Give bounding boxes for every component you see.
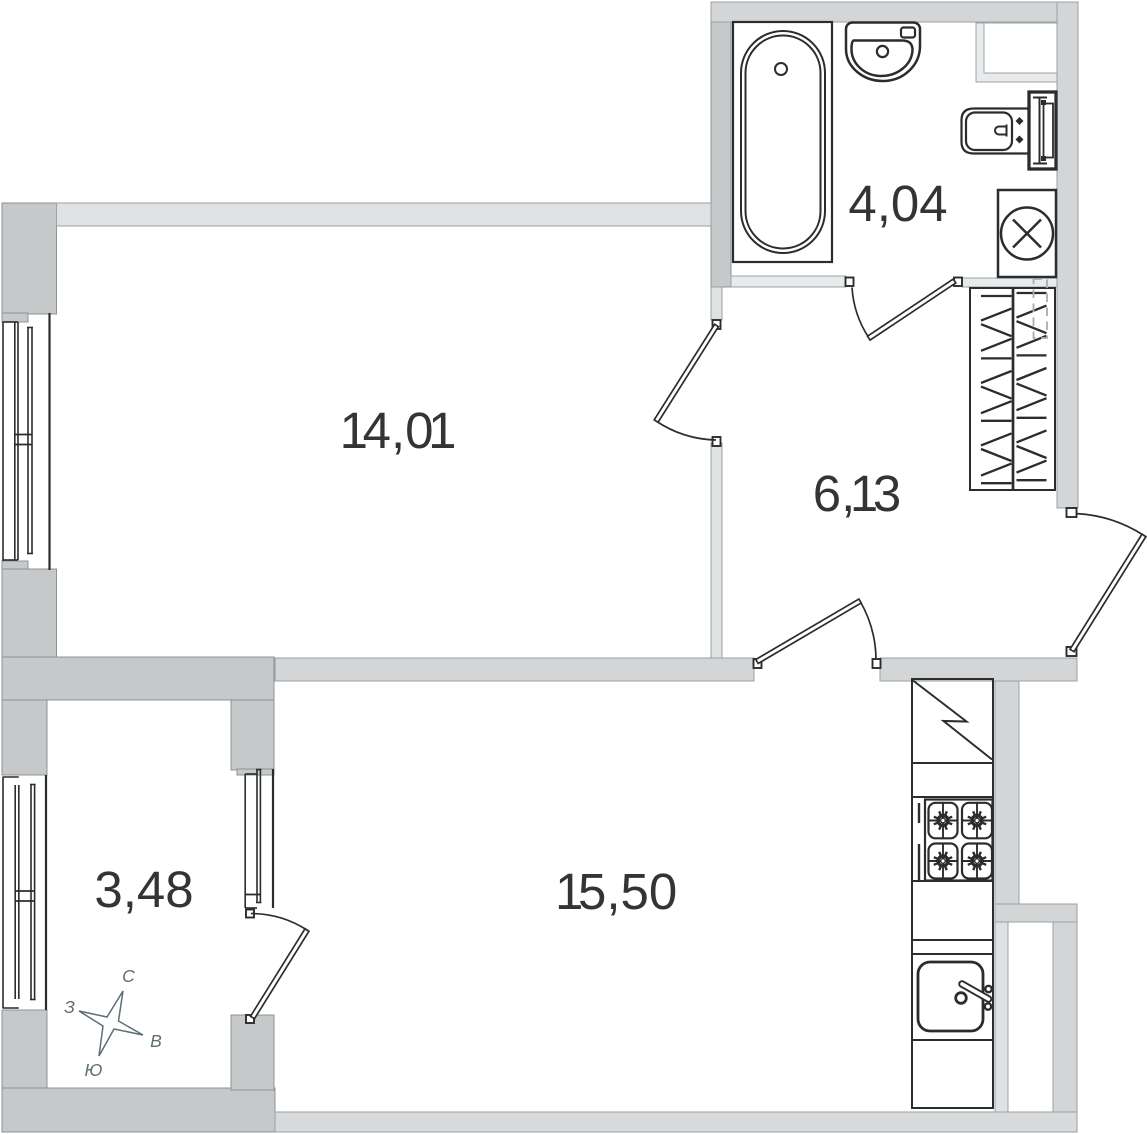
svg-text:С: С — [122, 966, 135, 986]
svg-text:З: З — [64, 997, 75, 1017]
svg-text:15,50: 15,50 — [555, 863, 677, 920]
svg-text:14,01: 14,01 — [340, 402, 457, 459]
svg-text:3,48: 3,48 — [94, 861, 193, 918]
svg-text:4,04: 4,04 — [848, 175, 947, 232]
svg-text:6,13: 6,13 — [813, 465, 901, 522]
svg-text:Ю: Ю — [85, 1060, 103, 1080]
svg-text:В: В — [150, 1031, 162, 1051]
